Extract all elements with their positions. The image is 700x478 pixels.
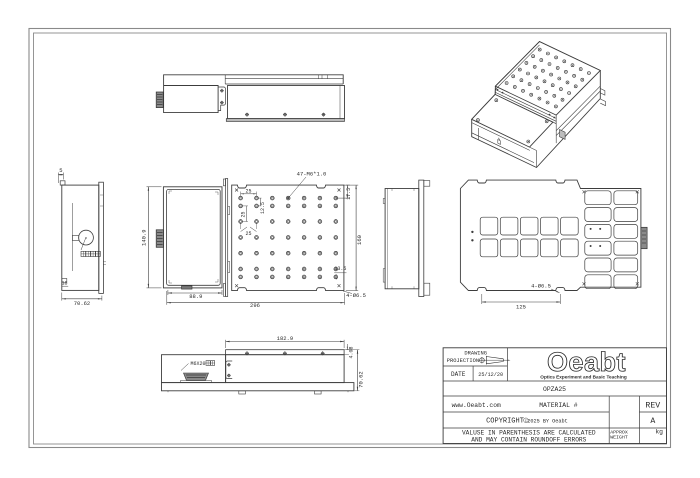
svg-text:125: 125 bbox=[516, 304, 526, 311]
svg-text:kg: kg bbox=[655, 429, 663, 436]
svg-text:140.9: 140.9 bbox=[140, 229, 147, 246]
svg-text:Oeabt: Oeabt bbox=[547, 347, 626, 377]
svg-text:MATERIAL #: MATERIAL # bbox=[539, 402, 578, 409]
svg-text:AND MAY CONTAIN ROUNDOFF ERROR: AND MAY CONTAIN ROUNDOFF ERRORS bbox=[471, 437, 586, 444]
svg-text:25: 25 bbox=[245, 231, 251, 237]
svg-text:DATE: DATE bbox=[451, 371, 466, 378]
svg-text:M6X20: M6X20 bbox=[191, 361, 206, 367]
svg-text:25: 25 bbox=[245, 188, 251, 194]
svg-text:25: 25 bbox=[241, 211, 247, 217]
svg-text:88.9: 88.9 bbox=[189, 293, 202, 300]
svg-text:Optics Experiment and Basic Te: Optics Experiment and Basic Teaching bbox=[540, 375, 627, 380]
svg-text:PROJECTION: PROJECTION bbox=[447, 358, 479, 364]
svg-text:160: 160 bbox=[356, 235, 363, 245]
svg-text:www.Oeabt.com: www.Oeabt.com bbox=[452, 402, 501, 409]
svg-text:182.9: 182.9 bbox=[277, 335, 294, 342]
svg-text:70.62: 70.62 bbox=[74, 300, 91, 307]
svg-text:DRAWING: DRAWING bbox=[464, 350, 487, 356]
svg-text:25/12/20: 25/12/20 bbox=[478, 372, 503, 378]
svg-text:WEIGHT: WEIGHT bbox=[610, 435, 628, 441]
svg-text:2025 BY Oeabt: 2025 BY Oeabt bbox=[527, 418, 567, 424]
svg-text:13.5: 13.5 bbox=[334, 266, 346, 272]
svg-text:A: A bbox=[650, 417, 655, 426]
svg-text:47-M6*1.0: 47-M6*1.0 bbox=[297, 171, 327, 178]
svg-text:COPYRIGHT: COPYRIGHT bbox=[486, 418, 524, 426]
svg-text:5: 5 bbox=[59, 167, 62, 174]
svg-text:12.5: 12.5 bbox=[260, 202, 266, 214]
svg-text:OPZA25: OPZA25 bbox=[543, 386, 566, 393]
svg-text:18: 18 bbox=[61, 281, 67, 287]
svg-text:17.5: 17.5 bbox=[346, 188, 352, 200]
svg-text:VALUSE IN PARENTHESIS ARE CALC: VALUSE IN PARENTHESIS ARE CALCULATED bbox=[462, 429, 596, 436]
svg-text:REV: REV bbox=[645, 402, 660, 411]
svg-text:296: 296 bbox=[250, 302, 260, 309]
svg-text:70.62: 70.62 bbox=[357, 371, 364, 388]
svg-text:4-Ø6.5: 4-Ø6.5 bbox=[531, 283, 551, 290]
svg-text:4.08: 4.08 bbox=[349, 346, 355, 358]
